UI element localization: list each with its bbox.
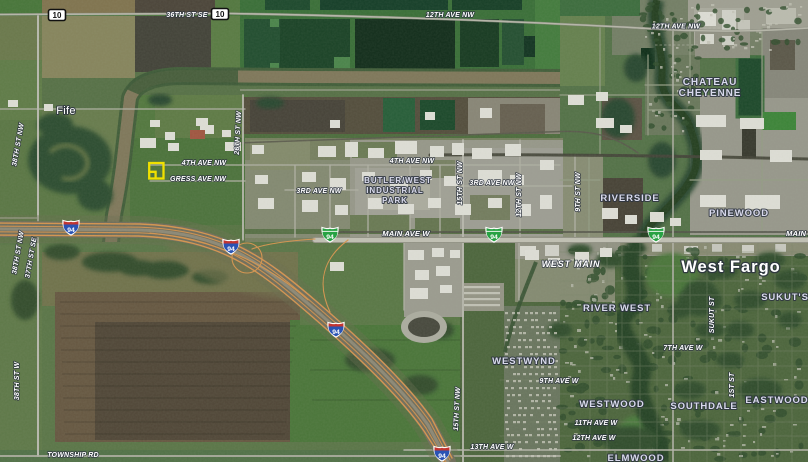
svg-text:1ST ST: 1ST ST — [729, 372, 736, 397]
svg-text:36TH ST SE: 36TH ST SE — [166, 12, 207, 19]
svg-text:7TH AVE W: 7TH AVE W — [663, 345, 703, 352]
svg-text:ELMWOOD: ELMWOOD — [608, 453, 665, 462]
svg-text:11TH AVE W: 11TH AVE W — [575, 420, 619, 427]
svg-text:3RD AVE NW: 3RD AVE NW — [296, 188, 342, 195]
svg-text:4TH AVE NW: 4TH AVE NW — [389, 158, 436, 165]
svg-text:3RD AVE NW: 3RD AVE NW — [469, 180, 515, 187]
svg-text:SOUTHDALE: SOUTHDALE — [670, 401, 737, 412]
svg-text:RIVER WEST: RIVER WEST — [583, 303, 651, 314]
svg-text:12TH AVE NW: 12TH AVE NW — [426, 12, 476, 19]
svg-text:West Fargo: West Fargo — [681, 258, 781, 276]
svg-text:12TH AVE NW: 12TH AVE NW — [652, 24, 702, 31]
svg-text:SUKUT'S: SUKUT'S — [761, 292, 808, 303]
svg-text:CHATEAU: CHATEAU — [683, 77, 737, 88]
svg-text:GRESS AVE NW: GRESS AVE NW — [170, 176, 227, 183]
svg-text:PINEWOOD: PINEWOOD — [709, 208, 769, 219]
svg-text:EASTWOOD: EASTWOOD — [745, 395, 808, 406]
svg-text:TOWNSHIP RD: TOWNSHIP RD — [47, 452, 99, 459]
svg-text:WEST MAIN: WEST MAIN — [542, 259, 601, 269]
svg-text:12TH AVE W: 12TH AVE W — [572, 435, 616, 442]
svg-text:MAIN A: MAIN A — [786, 229, 808, 238]
svg-text:WESTWOOD: WESTWOOD — [579, 399, 644, 410]
svg-text:4TH AVE NW: 4TH AVE NW — [181, 160, 228, 167]
svg-text:Fife: Fife — [56, 105, 76, 117]
svg-text:CHEYENNE: CHEYENNE — [679, 88, 742, 99]
svg-text:9TH AVE W: 9TH AVE W — [539, 378, 579, 385]
svg-text:MAIN AVE W: MAIN AVE W — [382, 229, 430, 238]
svg-text:PARK: PARK — [382, 196, 408, 205]
svg-text:BUTLER/WEST: BUTLER/WEST — [364, 176, 432, 185]
svg-text:12TH ST NW: 12TH ST NW — [516, 172, 523, 217]
svg-text:SUKUT ST: SUKUT ST — [709, 296, 716, 333]
svg-text:15TH ST NW: 15TH ST NW — [457, 160, 464, 205]
svg-text:WESTWYND: WESTWYND — [492, 356, 556, 367]
svg-text:RIVERSIDE: RIVERSIDE — [600, 193, 659, 204]
svg-text:INDUSTRIAL: INDUSTRIAL — [366, 186, 423, 195]
svg-text:38TH ST W: 38TH ST W — [14, 361, 21, 401]
svg-text:13TH AVE W: 13TH AVE W — [470, 444, 514, 451]
svg-text:9TH ST NW: 9TH ST NW — [575, 171, 582, 212]
